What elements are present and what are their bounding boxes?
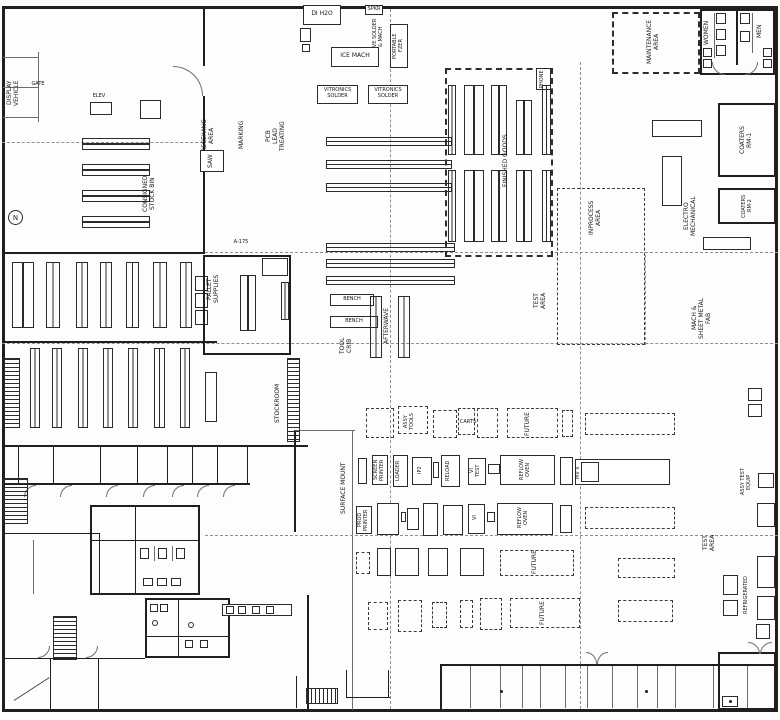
- mv-ii-label: MV II: [576, 463, 583, 483]
- equipment-box: [757, 503, 775, 527]
- staircase: [306, 688, 338, 704]
- door-swing: [86, 646, 98, 658]
- staircase: [3, 478, 28, 524]
- storage-rack: [128, 348, 138, 428]
- staircase: [53, 616, 77, 660]
- assy-tools-label: ASSY TOOLS: [404, 410, 416, 434]
- wall: [98, 658, 99, 710]
- wall: [2, 533, 100, 534]
- dock-door-track: [657, 666, 658, 708]
- afterwave-bench: [398, 296, 410, 358]
- vitronics-label: VITRONICS SOLDER: [318, 88, 357, 100]
- conveyor-link: [401, 512, 406, 522]
- wall: [145, 636, 230, 637]
- storage-rack: [82, 216, 150, 228]
- cabinet: [240, 275, 256, 331]
- future-machine-outline: [618, 558, 675, 578]
- wall: [50, 658, 51, 710]
- test-area-label: TEST AREA: [534, 284, 546, 318]
- reflow-oven-label: REFLOW OVEN: [520, 457, 534, 483]
- vi-label: VI: [473, 508, 481, 528]
- machine-block: [443, 505, 463, 535]
- wall: [346, 697, 390, 698]
- storage-rack: [82, 190, 150, 202]
- column-dot: [645, 690, 648, 693]
- wall: [135, 505, 136, 595]
- equipment-box: [748, 404, 762, 417]
- dock-door-track: [540, 666, 541, 708]
- storage-rack: [205, 372, 217, 422]
- sheet-metal-fab-label: MACH & SHEET METAL FAB: [692, 292, 710, 344]
- wall: [53, 447, 54, 483]
- gate-label: GATE: [28, 82, 48, 90]
- sink-fixture: [171, 578, 181, 586]
- afterwave-label: AFTERWAVE: [384, 300, 394, 352]
- toilet-fixture: [740, 13, 750, 24]
- vitronics-label: VITRONICS SOLDER: [369, 88, 407, 100]
- door-swing: [60, 485, 72, 497]
- future-label: FUTURE: [532, 552, 544, 574]
- door-swing: [586, 652, 597, 664]
- dock-door-track: [612, 666, 613, 708]
- column-dot: [500, 690, 503, 693]
- afterwave-bench: [370, 296, 382, 358]
- appliance: [226, 606, 234, 614]
- appliance: [266, 606, 274, 614]
- machine-block: [560, 505, 572, 533]
- machine-block: [428, 548, 448, 576]
- storage-rack: [516, 170, 532, 242]
- dock-door-track: [500, 666, 501, 708]
- future-machine-outline: [366, 408, 394, 438]
- grid-line: [580, 62, 581, 709]
- maintenance-area-label: MAINTENANCE AREA: [647, 16, 661, 68]
- machine-block: [423, 503, 438, 536]
- door-swing: [597, 652, 608, 664]
- saw-label: SAW: [208, 153, 216, 169]
- future-label: FUTURE: [540, 600, 552, 626]
- dock-door-track: [747, 666, 748, 708]
- elevator-label: ELEV: [88, 94, 110, 101]
- equipment-box: [723, 575, 738, 595]
- future-machine-outline: [432, 602, 447, 628]
- wall: [192, 447, 193, 483]
- toilet-fixture: [185, 640, 193, 648]
- sink-fixture: [703, 59, 712, 68]
- storage-rack: [154, 348, 165, 428]
- machine-block: [377, 548, 391, 576]
- storage-rack: [464, 170, 484, 242]
- elevator-shaft: [90, 102, 112, 115]
- dock-door-track: [565, 666, 566, 708]
- wall: [352, 430, 353, 710]
- appliance: [252, 606, 260, 614]
- tool-crib-label: TOOL CRIB: [340, 332, 352, 360]
- coaters-rm2-label: COATERS RM-2: [742, 190, 756, 222]
- equipment-box: [300, 28, 311, 42]
- work-bench-row: [326, 160, 452, 169]
- wall: [100, 447, 101, 483]
- door-swing: [223, 485, 235, 497]
- future-machine-outline: [562, 410, 573, 437]
- ice-machine-label: ICE MACH: [332, 53, 378, 61]
- reflow-oven-label: REFLOW OVEN: [518, 505, 532, 531]
- stockroom-label: STOCKROOM: [275, 380, 286, 426]
- wall: [90, 540, 200, 541]
- future-machine-outline: [398, 600, 422, 632]
- toilet-fixture: [740, 31, 750, 42]
- wall: [2, 709, 778, 712]
- test-area-label: TEST AREA: [703, 528, 716, 558]
- north-marker: N: [8, 210, 23, 225]
- bench: [662, 156, 682, 206]
- stall-partition: [172, 546, 173, 561]
- portable-freezer-label: PORTABLE FZER: [393, 28, 405, 64]
- door-swing: [38, 646, 50, 658]
- storage-rack: [46, 262, 60, 328]
- work-bench-row: [326, 259, 455, 268]
- electro-mechanical-label: ELECTRO MECHANICAL: [684, 194, 700, 238]
- toilet-fixture: [716, 29, 726, 40]
- dock-door-track: [587, 666, 588, 708]
- future-machine-outline: [356, 552, 370, 574]
- equipment-box: [302, 44, 310, 52]
- storage-rack: [100, 262, 112, 328]
- stall-partition: [752, 13, 753, 53]
- grid-line: [205, 535, 778, 536]
- storage-rack: [448, 85, 456, 155]
- stall-partition: [714, 13, 715, 58]
- future-machine-outline: [585, 413, 675, 435]
- future-machine-outline: [477, 408, 498, 438]
- storage-rack: [76, 262, 88, 328]
- storage-rack: [78, 348, 88, 428]
- door-swing: [173, 66, 203, 96]
- work-bench-row: [326, 183, 452, 192]
- storage-rack: [516, 100, 532, 155]
- wall: [247, 447, 248, 483]
- storage-rack: [448, 170, 456, 242]
- toilet-fixture: [160, 604, 168, 612]
- bench: [703, 237, 751, 250]
- prod-printer-label: PROD PRINTER: [358, 508, 370, 532]
- future-machine-outline: [618, 600, 673, 622]
- wall: [33, 540, 34, 594]
- refrigerated-label: REFRIGERATED: [744, 568, 754, 622]
- toilet-fixture: [158, 548, 167, 559]
- ip2-label: IP2: [418, 460, 426, 480]
- machine-block: [377, 503, 399, 535]
- conveyor-link: [487, 512, 495, 522]
- future-machine-outline: [368, 602, 388, 630]
- door-swing: [172, 485, 184, 497]
- storage-rack: [30, 348, 40, 428]
- receiving-area-label: RECEIVING AREA: [202, 118, 216, 154]
- mens-room-label: MEN: [757, 22, 766, 40]
- equipment-box: [262, 258, 288, 276]
- surface-mount-label: SURFACE MOUNT: [341, 452, 352, 524]
- conveyor: [287, 358, 300, 442]
- storage-rack: [180, 348, 190, 428]
- wall: [99, 533, 100, 595]
- storage-rack: [82, 138, 150, 150]
- sink-fixture: [763, 59, 772, 68]
- finished-goods-label: FINISHED GOODS: [503, 132, 514, 190]
- wall: [217, 447, 218, 483]
- toilet-fixture: [176, 548, 185, 559]
- wall: [2, 658, 145, 659]
- consigned-stock-label: CONSIGNED STOCK BIN: [143, 172, 157, 216]
- future-machine-outline: [433, 410, 457, 438]
- loader-label: LOADER: [396, 457, 405, 485]
- wall: [294, 430, 296, 532]
- toilet-fixture: [716, 13, 726, 24]
- wall: [2, 445, 308, 447]
- reload-label: RELOAD: [446, 458, 455, 484]
- di-water-label: DI H2O: [304, 11, 340, 19]
- wall: [295, 430, 355, 431]
- wall: [736, 9, 738, 65]
- door-tag-label: A-175: [232, 240, 250, 246]
- equipment-box: [748, 388, 762, 401]
- storage-rack: [180, 262, 192, 328]
- staircase: [4, 358, 20, 428]
- wall: [2, 483, 250, 485]
- equipment-box: [756, 624, 770, 639]
- inprocess-area-label: INPROCESS AREA: [589, 198, 602, 238]
- wall: [346, 670, 347, 698]
- dock-door-track: [522, 666, 523, 708]
- machine-block: [358, 458, 367, 484]
- door-swing: [143, 485, 155, 497]
- sink-fixture: [188, 622, 194, 628]
- toilet-fixture: [140, 548, 149, 559]
- toilet-fixture: [716, 45, 726, 56]
- work-bench-row: [326, 137, 452, 146]
- vi-test-label: VI TEST: [470, 459, 484, 483]
- wall: [137, 447, 138, 483]
- sink-fixture: [157, 578, 167, 586]
- conveyor-link: [433, 462, 439, 478]
- marking-label: MARKING: [239, 120, 249, 150]
- storage-rack: [542, 85, 551, 155]
- appliance: [238, 606, 246, 614]
- door-swing: [106, 485, 118, 497]
- wall: [388, 670, 389, 698]
- speaker-label: SPKR: [365, 7, 383, 13]
- coaters-rm1-label: COATERS RM-1: [740, 120, 756, 160]
- future-machine-outline: [480, 598, 502, 630]
- future-machine-outline: [460, 600, 473, 628]
- stall-partition: [154, 546, 155, 561]
- equipment-box: [758, 473, 774, 488]
- grid-line: [645, 255, 646, 345]
- machine-block: [560, 457, 573, 485]
- equipment-box: [757, 556, 775, 588]
- storage-rack: [542, 170, 551, 242]
- pcb-lead-treating-label: PCB LEAD TREATING: [266, 116, 284, 156]
- machine-block: [395, 548, 419, 576]
- door-swing: [760, 642, 772, 654]
- conveyor-link: [488, 464, 500, 474]
- wall: [167, 447, 168, 483]
- work-bench-row: [326, 243, 455, 252]
- equipment-box: [757, 596, 775, 620]
- shelf: [281, 282, 289, 320]
- toilet-fixture: [150, 604, 158, 612]
- screen-printer-label: SCREEN PRINTER: [374, 457, 386, 483]
- storage-rack: [12, 262, 34, 328]
- parking-line: [3, 57, 39, 58]
- column-dot: [729, 700, 732, 703]
- future-machine-outline: [585, 507, 675, 529]
- machine-module: [581, 462, 599, 482]
- grid-line: [390, 9, 391, 709]
- storage-rack: [153, 262, 167, 328]
- machine-block: [407, 508, 419, 530]
- dock-door-track: [675, 666, 676, 708]
- sink-fixture: [152, 620, 158, 626]
- wall: [203, 9, 205, 66]
- pallet-supplies-label: PALLET SUPPLIES: [207, 274, 223, 304]
- wall-diagonal: [14, 677, 50, 701]
- work-bench-row: [326, 276, 455, 285]
- womens-room-label: WOMEN: [704, 20, 713, 46]
- dock-door-track: [470, 666, 471, 708]
- equipment-box: [140, 100, 161, 119]
- wall: [440, 664, 442, 709]
- storage-rack: [103, 348, 113, 428]
- equipment-box: [723, 600, 738, 616]
- sink-fixture: [763, 48, 772, 57]
- door-swing: [197, 485, 209, 497]
- assy-test-equip-label: ASSY TEST EQUIP: [741, 464, 757, 500]
- future-label: FUTURE: [525, 412, 537, 436]
- sink-fixture: [703, 48, 712, 57]
- bench-label: BENCH: [331, 297, 373, 303]
- machine-block: [460, 548, 484, 576]
- wall: [296, 676, 297, 708]
- factory-floor-plan: DISPLAY VEHICLE GATE ELEV CONSIGNED STOC…: [0, 0, 780, 720]
- door-swing: [748, 642, 760, 654]
- bench: [652, 120, 702, 137]
- storage-rack: [82, 164, 150, 176]
- storage-rack: [52, 348, 62, 428]
- sink-fixture: [143, 578, 153, 586]
- dock-door-track: [713, 666, 714, 708]
- storage-rack: [464, 85, 484, 155]
- wall: [2, 252, 203, 254]
- wall: [178, 598, 179, 658]
- dock-door-track: [637, 666, 638, 708]
- toilet-fixture: [200, 640, 208, 648]
- display-vehicle-label: DISPLAY VEHICLE: [7, 62, 19, 124]
- storage-rack: [126, 262, 139, 328]
